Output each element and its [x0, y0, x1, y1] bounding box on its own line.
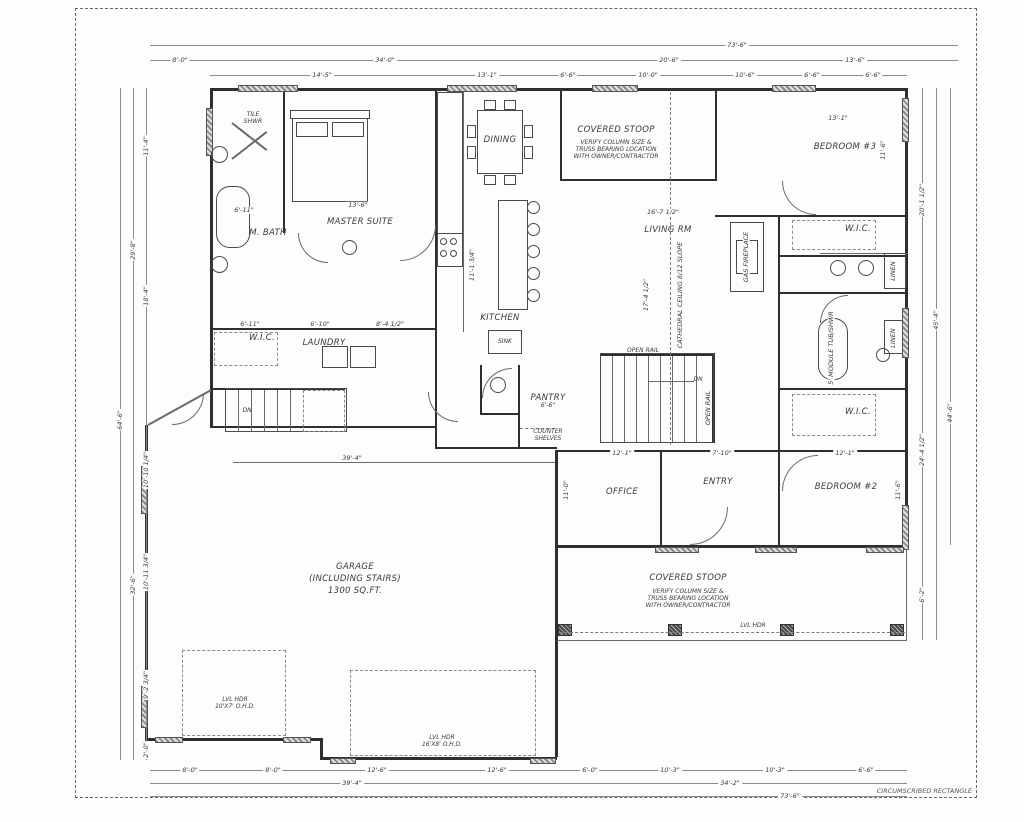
living-room-top-wall: [560, 179, 717, 181]
window-hatch: [902, 505, 909, 550]
porch-column: [668, 624, 682, 636]
wic-laundry-top-wall: [210, 328, 435, 330]
dimension-text-10-3: 10'-3": [763, 767, 787, 774]
vertical-text-2-0: 2'-0": [143, 741, 150, 758]
porch-column: [780, 624, 794, 636]
vertical-text-24-4-1-2: 24'-4 1/2": [919, 433, 926, 467]
room-label-1300-sq-ft: 1300 SQ.FT.: [328, 587, 382, 596]
dimension-line: [936, 88, 937, 640]
garage-door-opening-1: [182, 650, 286, 736]
room-label-covered-stoop: COVERED STOOP: [577, 126, 654, 135]
bar-stool: [527, 267, 540, 280]
entry-bedroom2-divider: [778, 452, 780, 545]
shower-room-wall: [283, 88, 285, 233]
bed-headboard: [290, 110, 370, 119]
vertical-text-gas-fireplace: GAS FIREPLACE: [743, 231, 750, 284]
master-sink: [211, 256, 228, 273]
room-label-dining: DINING: [484, 136, 517, 145]
bar-stool: [527, 201, 540, 214]
vertical-text-45-4: 45'-4": [933, 309, 940, 331]
dimension-text-13-1: 13'-1": [475, 72, 499, 79]
dimension-text-6-10: 6'-10": [308, 321, 332, 328]
note-label-shelves: SHELVES: [535, 436, 562, 442]
vertical-text-cathedral-ceiling-8-12-slope: CATHEDRAL CEILING 8/12 SLOPE: [677, 241, 684, 350]
burner: [450, 238, 457, 245]
dimension-text-6-6: 6'-6": [856, 767, 875, 774]
hall-wall: [778, 215, 780, 452]
room-label-entry: ENTRY: [703, 478, 733, 487]
washer: [322, 346, 348, 368]
bath-wic2-divider: [778, 388, 907, 390]
note-label-open-rail: OPEN RAIL: [627, 348, 659, 354]
room-label-w-i-c: W.I.C.: [845, 408, 871, 417]
vertical-text-29-8: 29'-8": [130, 239, 137, 261]
pillow: [332, 122, 364, 137]
dimension-text-12-1: 12'-1": [610, 450, 634, 457]
master-toilet: [342, 240, 357, 255]
window-hatch: [447, 85, 517, 92]
dining-chair: [484, 100, 496, 110]
vertical-text-5-module-tub-shwr: 5' MODULE TUB/SHWR: [828, 310, 835, 386]
note-label-sink: SINK: [498, 339, 512, 345]
note-label-lvl-hdr: LVL HDR: [740, 623, 766, 629]
note-label-10-x7-o-h-d: 10'X7' O.H.D.: [215, 704, 255, 710]
dimension-text-10-3: 10'-3": [658, 767, 682, 774]
note-label-6-6: 6'-6": [541, 403, 555, 409]
burner: [450, 250, 457, 257]
lvl-hdr-line: [560, 632, 905, 633]
vertical-text-20-1-1-2: 20'-1 1/2": [919, 183, 926, 217]
bedroom3-bottom-wall: [715, 215, 907, 217]
garage-stair-dashed-treads: [303, 390, 345, 432]
window-hatch: [902, 98, 909, 142]
master-sink: [211, 146, 228, 163]
vertical-text-11-4: 11'-4": [143, 135, 150, 157]
dimension-text-13-1: 13'-1": [826, 115, 850, 122]
vanity-hall-divider: [778, 292, 907, 294]
window-hatch: [592, 85, 638, 92]
vanity-sink: [830, 260, 846, 276]
dining-chair: [467, 125, 476, 138]
vertical-text-64-6: 64'-6": [117, 409, 124, 431]
circumscribed-rectangle-label: CIRCUMSCRIBED RECTANGLE: [877, 787, 972, 795]
note-label-with-owner-contractor: WITH OWNER/CONTRACTOR: [646, 603, 731, 609]
vertical-text-9-2-3-4: 9'-2 3/4": [143, 670, 150, 700]
dimension-text-7-10: 7'-10": [710, 450, 734, 457]
burner: [440, 238, 447, 245]
note-label-shwr: SHWR: [244, 119, 262, 125]
vertical-text-11-1-3-4: 11'-1 3/4": [469, 248, 476, 282]
room-label-m-bath: M. BATH: [249, 229, 286, 238]
bar-stool: [527, 245, 540, 258]
stoop-left-wall: [560, 88, 562, 181]
room-label-laundry: LAUNDRY: [303, 339, 346, 348]
dimension-text-39-4: 39'-4": [340, 780, 364, 787]
room-label-including-stairs: (INCLUDING STAIRS): [309, 575, 401, 584]
room-label-bedroom-3: BEDROOM #3: [814, 143, 877, 152]
window-hatch: [283, 737, 311, 743]
room-label-pantry: PANTRY: [531, 394, 566, 403]
master-tub: [216, 186, 250, 248]
dimension-text-16-7-1-2: 16'-7 1/2": [645, 209, 681, 216]
room-label-bedroom-2: BEDROOM #2: [815, 483, 878, 492]
powder-bottom-wall: [480, 413, 520, 415]
vertical-text-11-6: 11'-6": [880, 139, 887, 161]
dimension-text-39-4: 39'-4": [340, 455, 364, 462]
window-hatch: [902, 308, 909, 358]
dimension-text-12-6: 12'-6": [365, 767, 389, 774]
pantry-left-wall: [518, 365, 520, 447]
garage-right-wall: [555, 452, 558, 757]
dimension-text-10-6: 10'-6": [733, 72, 757, 79]
vertical-text-18-4: 18'-4": [143, 285, 150, 307]
vertical-text-open-rail: OPEN RAIL: [705, 390, 712, 427]
stoop-right-wall: [715, 88, 717, 181]
room-label-master-suite: MASTER SUITE: [327, 218, 393, 227]
dimension-text-8-4-1-2: 8'-4 1/2": [374, 321, 406, 328]
vertical-text-11-6: 11'-6": [895, 479, 902, 501]
bar-stool: [527, 223, 540, 236]
dimension-text-13-6: 13'-6": [346, 202, 370, 209]
room-label-w-i-c: W.I.C.: [249, 334, 275, 343]
dimension-text-6-6: 6'-6": [802, 72, 821, 79]
vertical-text-10-11-3-4: 10'-11 3/4": [143, 553, 150, 591]
powder-left-wall: [480, 365, 482, 415]
porch-column: [558, 624, 572, 636]
dining-chair: [484, 175, 496, 185]
dimension-text-34-2: 34'-2": [718, 780, 742, 787]
window-hatch: [530, 758, 556, 764]
dining-chair: [467, 146, 476, 159]
pillow: [296, 122, 328, 137]
dimension-text-6-11: 6'-11": [238, 321, 262, 328]
room-label-garage: GARAGE: [336, 563, 374, 572]
room-label-kitchen: KITCHEN: [480, 314, 519, 323]
dining-chair: [504, 175, 516, 185]
note-label-dn: DN: [242, 408, 251, 414]
vertical-text-linen: LINEN: [890, 260, 897, 281]
dimension-line: [150, 45, 958, 46]
vertical-text-11-0: 11'-0": [563, 479, 570, 501]
cathedral-ceiling-line: [670, 92, 671, 445]
vanity-sink: [858, 260, 874, 276]
dimension-line: [150, 783, 907, 784]
window-hatch: [155, 737, 183, 743]
dining-chair: [524, 125, 533, 138]
kitchen-counter-edge: [463, 92, 464, 332]
bar-stool: [527, 289, 540, 302]
vertical-text-6-2: 6'-2": [919, 586, 926, 603]
dimension-line: [150, 60, 958, 61]
dimension-text-6-6: 6'-6": [863, 72, 882, 79]
vertical-text-44-6: 44'-6": [947, 402, 954, 424]
floor-plan-canvas: CIRCUMSCRIBED RECTANGLE MASTER SUITEM. B…: [0, 0, 1024, 822]
vertical-text-linen: LINEN: [890, 327, 897, 348]
dimension-text-6-11: 6'-11": [232, 207, 256, 214]
kitchen-counter: [437, 92, 463, 234]
vertical-text-32-6: 32'-6": [130, 574, 137, 596]
dining-chair: [504, 100, 516, 110]
kitchen-island: [498, 200, 528, 310]
porch-column: [890, 624, 904, 636]
note-label-16-x8-o-h-d: 16'X8' O.H.D.: [422, 742, 462, 748]
dimension-text-10-0: 10'-0": [636, 72, 660, 79]
burner: [440, 250, 447, 257]
garage-dim-line: [233, 462, 555, 463]
porch-edge-bottom: [557, 640, 907, 641]
dimension-text-8-0: 8'-0": [170, 57, 189, 64]
room-label-living-rm: LIVING RM: [644, 226, 691, 235]
window-hatch: [238, 85, 298, 92]
dimension-line: [950, 88, 951, 545]
main-stairs: [600, 353, 714, 443]
note-label-dn: DN: [693, 377, 702, 383]
room-label-covered-stoop: COVERED STOOP: [649, 574, 726, 583]
room-label-w-i-c: W.I.C.: [845, 225, 871, 234]
dimension-text-8-0: 8'-0": [180, 767, 199, 774]
kitchen-bottom-wall: [435, 447, 557, 449]
dimension-text-8-0: 8'-0": [263, 767, 282, 774]
window-hatch: [866, 547, 904, 553]
room-label-office: OFFICE: [606, 488, 638, 497]
dining-chair: [524, 146, 533, 159]
dimension-text-14-5: 14'-5": [310, 72, 334, 79]
wing-bottom-wall: [555, 545, 907, 548]
dimension-text-12-1: 12'-1": [833, 450, 857, 457]
dimension-text-6-6: 6'-6": [558, 72, 577, 79]
hall-toilet: [876, 348, 890, 362]
dimension-line: [922, 88, 923, 640]
dimension-text-12-6: 12'-6": [485, 767, 509, 774]
dimension-text-20-6: 20'-6": [657, 57, 681, 64]
vertical-text-17-4-1-2: 17'-4 1/2": [643, 278, 650, 312]
dryer: [350, 346, 376, 368]
dimension-line: [133, 88, 134, 760]
dimension-text-73-6: 73'-6": [725, 42, 749, 49]
dimension-text-34-0: 34'-0": [373, 57, 397, 64]
dimension-text-6-0: 6'-0": [580, 767, 599, 774]
dimension-text-73-6: 73'-6": [778, 793, 802, 800]
window-hatch: [772, 85, 816, 92]
dimension-text-13-6: 13'-6": [843, 57, 867, 64]
window-hatch: [755, 547, 797, 553]
window-hatch: [330, 758, 356, 764]
window-hatch: [655, 547, 699, 553]
note-label-with-owner-contractor: WITH OWNER/CONTRACTOR: [574, 154, 659, 160]
office-entry-divider: [660, 452, 662, 545]
porch-edge-right: [906, 547, 907, 641]
vertical-text-10-10-1-4: 10'-10 1/4": [143, 451, 150, 489]
